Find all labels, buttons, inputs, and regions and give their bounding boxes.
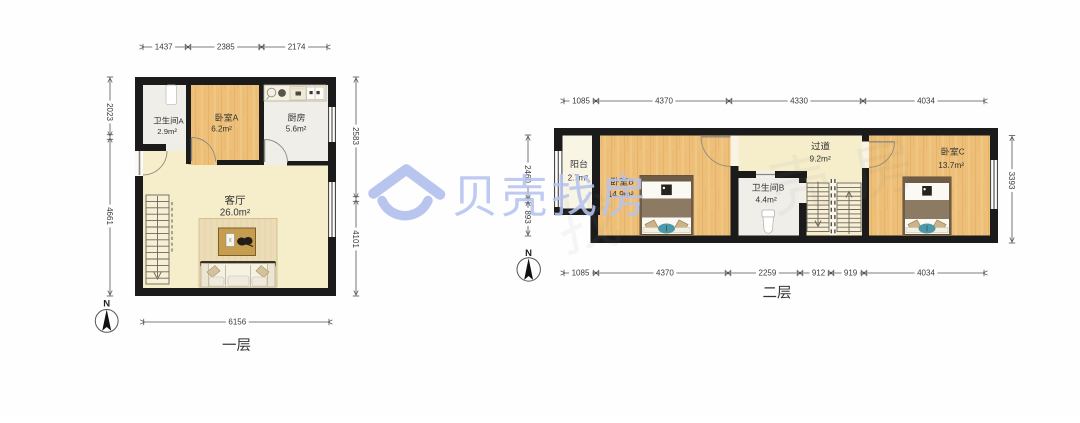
svg-text:4370: 4370 — [655, 97, 673, 106]
svg-text:N: N — [525, 248, 532, 259]
svg-text:B: B — [628, 177, 634, 187]
svg-text:1437: 1437 — [155, 43, 173, 52]
svg-text:C: C — [959, 147, 965, 157]
svg-text:1085: 1085 — [572, 97, 590, 106]
svg-text:4661: 4661 — [105, 207, 114, 225]
svg-text:4101: 4101 — [351, 230, 360, 248]
svg-text:4330: 4330 — [790, 97, 808, 106]
svg-text:A: A — [233, 113, 239, 123]
svg-text:4370: 4370 — [656, 269, 674, 278]
svg-text:4.4m²: 4.4m² — [756, 195, 777, 205]
svg-text:A: A — [179, 116, 185, 125]
svg-text:1085: 1085 — [572, 269, 590, 278]
svg-text:4034: 4034 — [917, 97, 935, 106]
svg-text:6.2m²: 6.2m² — [211, 124, 232, 133]
svg-text:919: 919 — [844, 269, 858, 278]
svg-text:N: N — [103, 299, 110, 310]
svg-text:3393: 3393 — [1007, 172, 1016, 190]
svg-text:2259: 2259 — [759, 269, 777, 278]
svg-text:4034: 4034 — [917, 269, 935, 278]
svg-text:912: 912 — [812, 269, 826, 278]
svg-text:2023: 2023 — [105, 103, 114, 121]
svg-text:2.9m²: 2.9m² — [157, 127, 177, 136]
svg-text:2385: 2385 — [217, 43, 235, 52]
svg-text:6156: 6156 — [228, 318, 246, 327]
svg-text:5.6m²: 5.6m² — [286, 124, 307, 133]
svg-text:2583: 2583 — [351, 127, 360, 145]
svg-text:26.0m²: 26.0m² — [220, 208, 251, 219]
svg-text:2174: 2174 — [288, 43, 306, 52]
svg-text:13.7m²: 13.7m² — [938, 160, 964, 170]
